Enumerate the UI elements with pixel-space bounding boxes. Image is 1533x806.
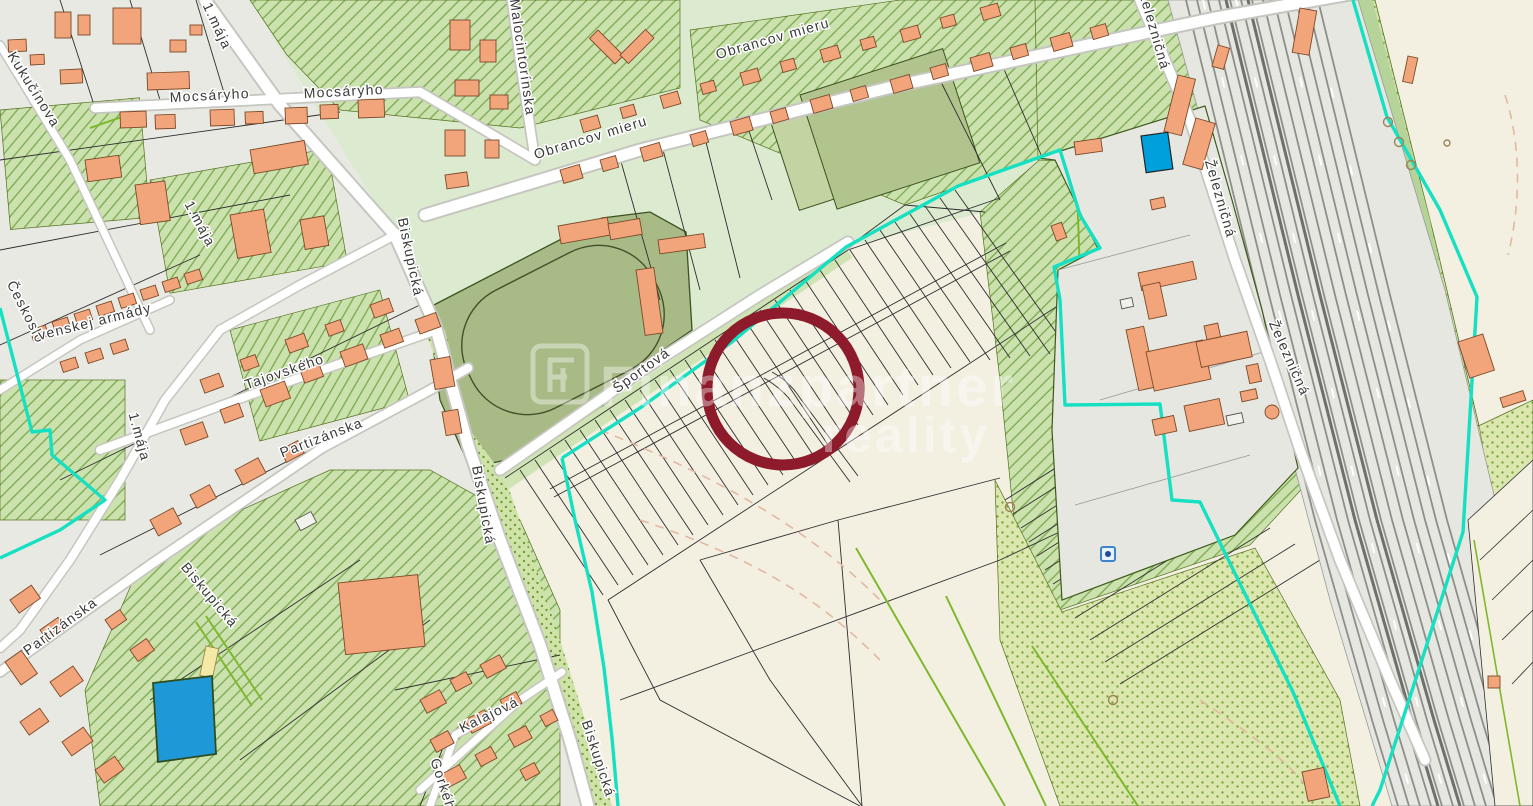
map-container[interactable]: Finanzpartner reality 1.mája 1.mája 1.má…	[0, 0, 1533, 806]
map-image[interactable]: Finanzpartner reality 1.mája 1.mája 1.má…	[0, 0, 1533, 806]
watermark-line2: reality	[822, 407, 990, 463]
map-marker-icon	[1101, 547, 1115, 561]
pool	[1141, 132, 1173, 172]
pond	[153, 676, 216, 762]
large-building	[338, 575, 425, 655]
